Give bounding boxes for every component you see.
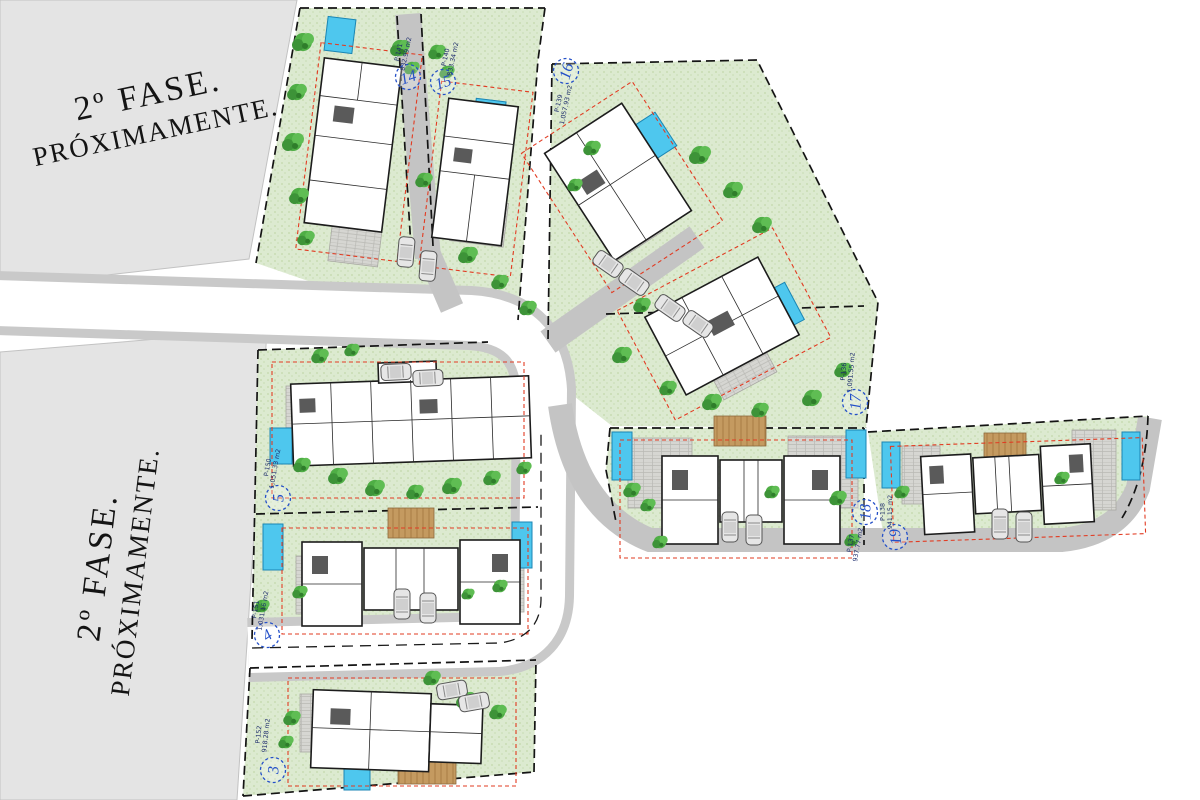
car-icon [381, 363, 412, 381]
car-icon [394, 589, 410, 619]
plot-number: 19 [887, 528, 906, 546]
site-plan-canvas: 2º FASE. PRÓXIMAMENTE. 2º FASE. PRÓXIMAM… [0, 0, 1200, 800]
plot-marker-3[interactable]: 3 [261, 758, 286, 783]
plot-number: 3 [266, 766, 283, 775]
car-icon [992, 509, 1008, 539]
wood-deck [388, 508, 434, 538]
plot-number: 18 [858, 504, 875, 520]
car-icon [419, 250, 438, 281]
wood-deck [714, 416, 766, 446]
car-icon [413, 369, 444, 387]
pool [263, 524, 283, 570]
pool [324, 16, 356, 53]
car-icon [722, 512, 738, 542]
plot-number: 17 [848, 393, 865, 410]
svg-text:P-138: P-138 [880, 503, 887, 521]
plot-marker-17[interactable]: 17 [843, 390, 868, 415]
svg-text:941.15 m2: 941.15 m2 [887, 495, 894, 529]
car-icon [746, 515, 762, 545]
pool [1122, 432, 1140, 480]
plot-number: 5 [271, 494, 288, 502]
car-icon [397, 236, 416, 267]
car-icon [1016, 512, 1032, 542]
plot-marker-16[interactable]: 16 [554, 59, 579, 84]
pool [612, 432, 632, 480]
plot-marker-5[interactable]: 5 [266, 486, 291, 511]
car-icon [420, 593, 436, 623]
wood-deck [984, 433, 1026, 457]
plot-marker-18[interactable]: 18 [853, 500, 878, 525]
site-plan: 2º FASE. PRÓXIMAMENTE. 2º FASE. PRÓXIMAM… [0, 0, 1200, 800]
pool [846, 430, 866, 478]
